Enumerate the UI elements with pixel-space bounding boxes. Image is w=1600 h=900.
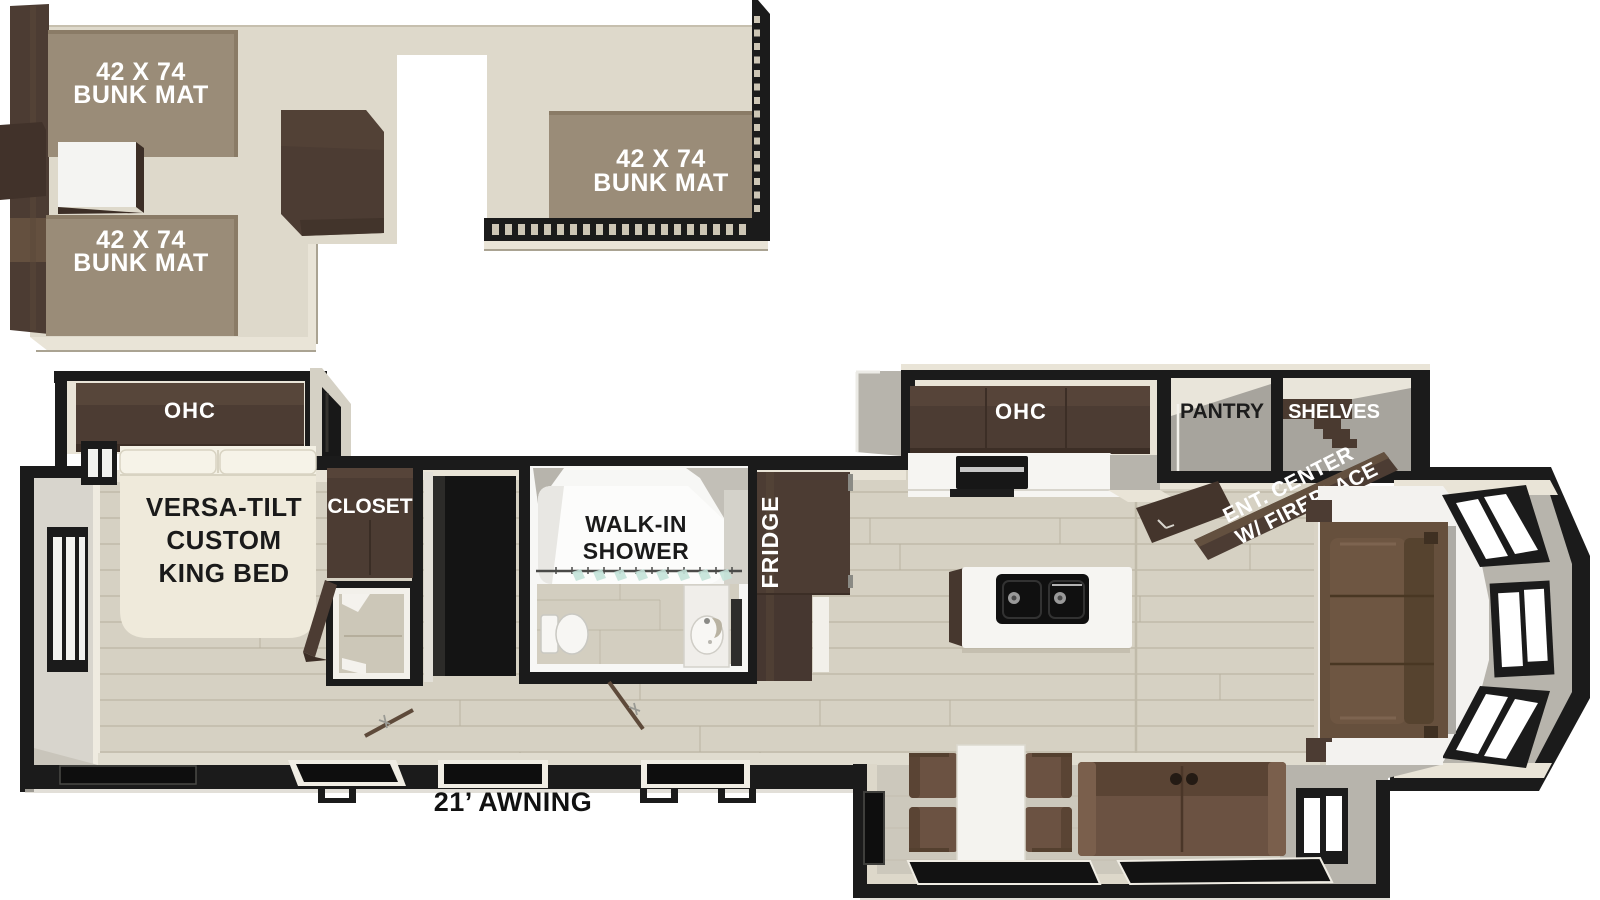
- svg-text:21’ AWNING: 21’ AWNING: [434, 787, 593, 817]
- svg-text:BUNK MAT: BUNK MAT: [593, 169, 728, 197]
- svg-text:KING BED: KING BED: [158, 558, 289, 588]
- svg-text:SHOWER: SHOWER: [583, 538, 690, 564]
- svg-text:SHELVES: SHELVES: [1288, 401, 1380, 423]
- svg-text:CUSTOM: CUSTOM: [166, 525, 281, 555]
- svg-text:BUNK MAT: BUNK MAT: [73, 81, 208, 109]
- svg-text:OHC: OHC: [164, 398, 216, 423]
- svg-text:OHC: OHC: [995, 399, 1047, 424]
- svg-text:FRIDGE: FRIDGE: [757, 496, 783, 589]
- svg-text:WALK-IN: WALK-IN: [585, 511, 687, 537]
- svg-text:VERSA-TILT: VERSA-TILT: [146, 492, 302, 522]
- svg-text:PANTRY: PANTRY: [1180, 400, 1264, 423]
- svg-text:CLOSET: CLOSET: [327, 495, 412, 518]
- svg-text:BUNK MAT: BUNK MAT: [73, 249, 208, 277]
